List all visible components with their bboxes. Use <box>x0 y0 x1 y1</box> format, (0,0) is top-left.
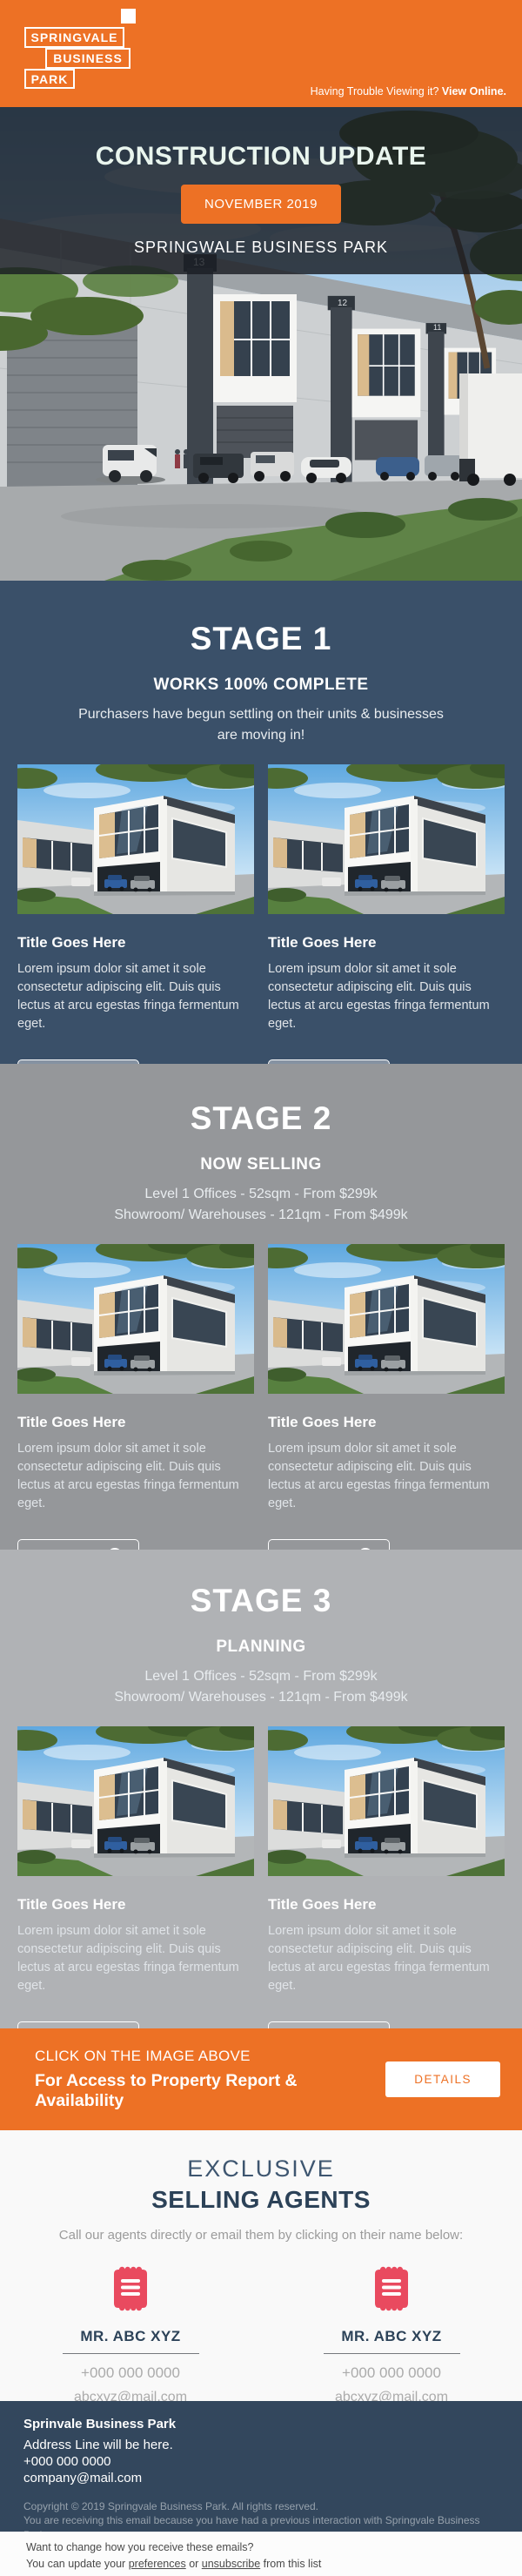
stage-card-image[interactable] <box>17 1244 254 1394</box>
view-online-link[interactable]: View Online. <box>442 85 506 98</box>
know-more-button[interactable]: Know More <box>17 1059 139 1064</box>
card-title: Title Goes Here <box>268 1896 505 1914</box>
agent-divider <box>63 2353 199 2354</box>
bottom-line2: You can update your preferences or unsub… <box>26 2556 496 2573</box>
stage-1-description: Purchasers have begun settling on their … <box>0 704 522 746</box>
know-more-button[interactable]: Know More <box>268 2021 390 2028</box>
springvale-logo[interactable]: SPRINGVALE BUSINESS PARK <box>0 0 174 96</box>
card-body: Lorem ipsum dolor sit amet it sole conse… <box>268 1922 505 1995</box>
stage-3-title: STAGE 3 <box>0 1583 522 1619</box>
stage-card-image[interactable] <box>17 1726 254 1876</box>
agent-stamp-icon[interactable] <box>110 2266 151 2311</box>
card-title: Title Goes Here <box>17 1896 254 1914</box>
cta-line2: For Access to Property Report & Availabi… <box>35 2071 385 2111</box>
logo-square <box>121 9 136 24</box>
unsubscribe-link[interactable]: unsubscribe <box>202 2558 260 2570</box>
logo-box-springvale: SPRINGVALE <box>24 27 124 48</box>
stage-card: Title Goes Here Lorem ipsum dolor sit am… <box>17 764 254 1064</box>
logo-box-park: PARK <box>24 69 75 89</box>
footer-reason-line1: You are receiving this email because you… <box>23 2513 496 2532</box>
svg-text:12: 12 <box>338 299 348 308</box>
know-more-button[interactable]: Know More <box>17 1539 139 1550</box>
cta-text: CLICK ON THE IMAGE ABOVE For Access to P… <box>35 2048 385 2111</box>
stage-card-image[interactable] <box>268 1244 505 1394</box>
card-body: Lorem ipsum dolor sit amet it sole conse… <box>268 1440 505 1513</box>
hero-overlay: CONSTRUCTION UPDATE NOVEMBER 2019 SPRING… <box>0 107 522 274</box>
date-badge: NOVEMBER 2019 <box>181 185 341 224</box>
agent-email[interactable]: abcxyz@mail.com <box>261 2390 522 2401</box>
stage-2-status: NOW SELLING <box>0 1155 522 1174</box>
arrow-circle-icon <box>108 1548 122 1550</box>
stage-card: Title Goes Here Lorem ipsum dolor sit am… <box>17 1726 254 2028</box>
stage-card-image[interactable] <box>268 1726 505 1876</box>
footer-phone: +000 000 0000 <box>23 2454 496 2471</box>
stage-1-status: WORKS 100% COMPLETE <box>0 676 522 695</box>
agent-divider <box>324 2353 460 2354</box>
know-more-button[interactable]: Know More <box>268 1059 390 1064</box>
agent-column: MR. ABC XYZ +000 000 0000 abcxyz@mail.co… <box>0 2266 261 2401</box>
card-body: Lorem ipsum dolor sit amet it sole conse… <box>17 1440 254 1513</box>
agent-column: MR. ABC XYZ +000 000 0000 abcxyz@mail.co… <box>261 2266 522 2401</box>
stage-card: Title Goes Here Lorem ipsum dolor sit am… <box>268 1244 505 1550</box>
cta-section: CLICK ON THE IMAGE ABOVE For Access to P… <box>0 2028 522 2130</box>
stage-1-section: STAGE 1 WORKS 100% COMPLETE Purchasers h… <box>0 581 522 1064</box>
stage-card-image[interactable] <box>268 764 505 914</box>
agents-section: EXCLUSIVE SELLING AGENTS Call our agents… <box>0 2130 522 2401</box>
stage-1-title: STAGE 1 <box>0 621 522 657</box>
stage-card: Title Goes Here Lorem ipsum dolor sit am… <box>268 1726 505 2028</box>
trouble-viewing-text: Having Trouble Viewing it? <box>311 85 439 98</box>
stage-card: Title Goes Here Lorem ipsum dolor sit am… <box>17 1244 254 1550</box>
card-title: Title Goes Here <box>17 1414 254 1431</box>
footer-email: company@mail.com <box>23 2471 496 2487</box>
card-title: Title Goes Here <box>268 934 505 952</box>
card-title: Title Goes Here <box>17 934 254 952</box>
know-more-label: Know More <box>35 1548 98 1550</box>
arrow-circle-icon <box>358 1548 372 1550</box>
header-bar: SPRINGVALE BUSINESS PARK Having Trouble … <box>0 0 522 107</box>
agents-title-light: EXCLUSIVE <box>0 2156 522 2183</box>
cta-line1: CLICK ON THE IMAGE ABOVE <box>35 2048 385 2065</box>
agent-phone[interactable]: +000 000 0000 <box>0 2364 261 2382</box>
email-page: SPRINGVALE BUSINESS PARK Having Trouble … <box>0 0 522 2576</box>
hero-image[interactable]: 13 12 <box>0 107 522 581</box>
know-more-button[interactable]: Know More <box>268 1539 390 1550</box>
stage-3-prices: Level 1 Offices - 52sqm - From $299k Sho… <box>0 1666 522 1708</box>
construction-update-title: CONSTRUCTION UPDATE <box>96 142 427 172</box>
agent-name[interactable]: MR. ABC XYZ <box>0 2328 261 2345</box>
agent-name[interactable]: MR. ABC XYZ <box>261 2328 522 2345</box>
stage-2-title: STAGE 2 <box>0 1100 522 1137</box>
card-title: Title Goes Here <box>268 1414 505 1431</box>
agent-email[interactable]: abcxyz@mail.com <box>0 2390 261 2401</box>
stage-card-image[interactable] <box>17 764 254 914</box>
stage-card: Title Goes Here Lorem ipsum dolor sit am… <box>268 764 505 1064</box>
view-online-row: Having Trouble Viewing it? View Online. <box>311 85 506 98</box>
footer-copyright: Copyright © 2019 Springvale Business Par… <box>23 2499 496 2513</box>
agents-title-bold: SELLING AGENTS <box>0 2186 522 2214</box>
footer-address: Address Line will be here. <box>23 2438 496 2454</box>
card-body: Lorem ipsum dolor sit amet it sole conse… <box>268 960 505 1033</box>
details-button[interactable]: DETAILS <box>385 2061 500 2097</box>
footer-company: Sprinvale Business Park <box>23 2417 496 2431</box>
bottom-line1: Want to change how you receive these ema… <box>26 2539 496 2556</box>
know-more-label: Know More <box>285 1548 349 1550</box>
agent-phone[interactable]: +000 000 0000 <box>261 2364 522 2382</box>
card-body: Lorem ipsum dolor sit amet it sole conse… <box>17 960 254 1033</box>
footer-section: Sprinvale Business Park Address Line wil… <box>0 2401 522 2532</box>
agent-stamp-icon[interactable] <box>371 2266 412 2311</box>
stage-3-status: PLANNING <box>0 1638 522 1657</box>
logo-box-business: BUSINESS <box>45 48 130 69</box>
stage-2-section: STAGE 2 NOW SELLING Level 1 Offices - 52… <box>0 1064 522 1550</box>
hero-subtitle: SPRINGWALE BUSINESS PARK <box>134 239 388 257</box>
know-more-button[interactable]: Know More <box>17 2021 139 2028</box>
agents-subtitle: Call our agents directly or email them b… <box>0 2228 522 2243</box>
card-body: Lorem ipsum dolor sit amet it sole conse… <box>17 1922 254 1995</box>
preferences-link[interactable]: preferences <box>129 2558 186 2570</box>
stage-3-section: STAGE 3 PLANNING Level 1 Offices - 52sqm… <box>0 1550 522 2028</box>
bottom-bar: Want to change how you receive these ema… <box>0 2532 522 2576</box>
stage-2-prices: Level 1 Offices - 52sqm - From $299k Sho… <box>0 1184 522 1226</box>
svg-text:11: 11 <box>433 323 441 332</box>
